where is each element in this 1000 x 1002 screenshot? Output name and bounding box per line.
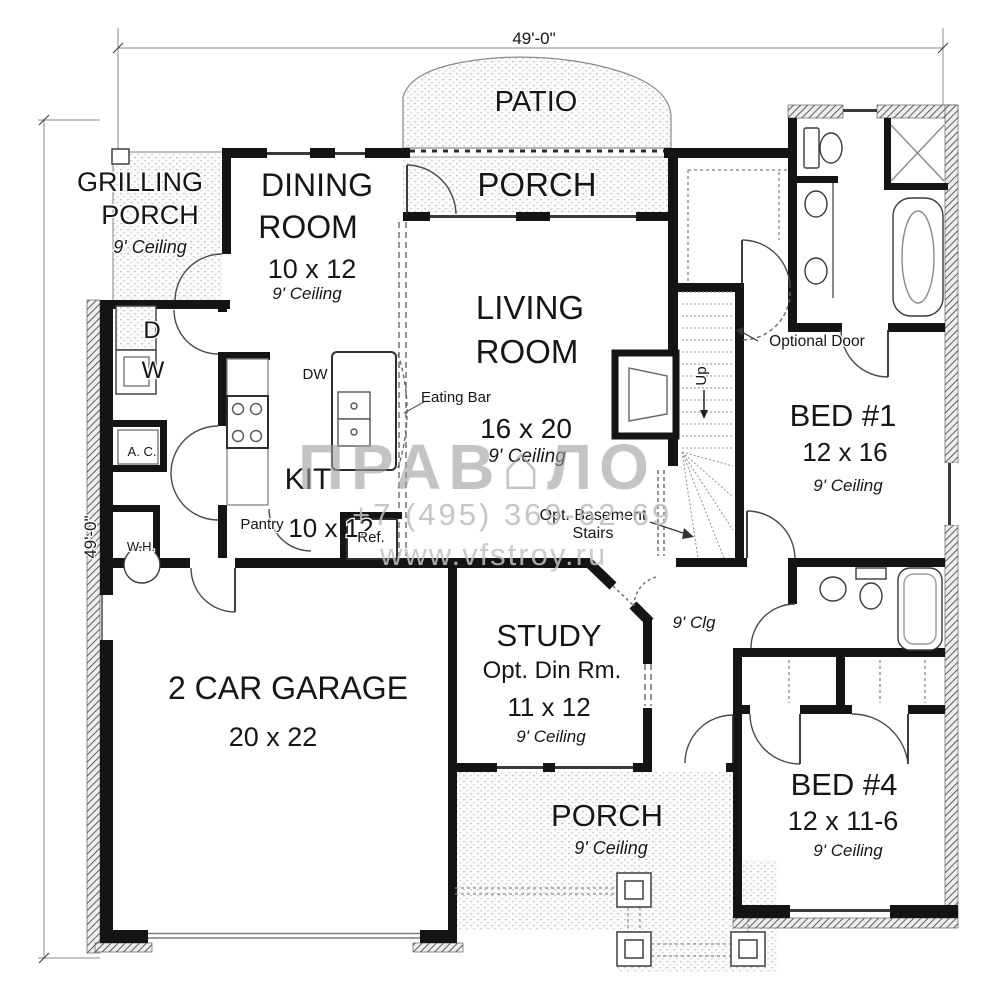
study-alt-label: Opt. Din Rm. — [483, 657, 622, 684]
opt-basement-label-2: Stairs — [573, 525, 614, 542]
stove — [227, 396, 268, 448]
study-label: STUDY — [496, 618, 601, 653]
washer-label: W — [142, 357, 165, 384]
front-porch-label: PORCH — [551, 798, 663, 833]
optional-door-label: Optional Door — [769, 333, 865, 350]
hall-ceiling-label: 9' Clg — [673, 613, 716, 632]
study-size: 11 x 12 — [507, 692, 590, 722]
bed1-ceiling: 9' Ceiling — [813, 476, 883, 495]
bed1-label: BED #1 — [790, 398, 897, 433]
garage-doors — [102, 595, 420, 938]
fridge-label: Ref. — [357, 529, 385, 546]
pantry-label: Pantry — [240, 516, 284, 533]
ac-label: A. C. — [128, 444, 157, 459]
toilet-bowl-master — [820, 133, 842, 163]
front-porch-ceiling: 9' Ceiling — [574, 838, 647, 858]
living-label-1: LIVING — [476, 289, 584, 326]
rear-porch-label: PORCH — [477, 166, 596, 203]
bed4-label: BED #4 — [791, 767, 898, 802]
basement-arrow — [650, 522, 694, 539]
opt-basement-label-1: Opt. Basement — [540, 507, 647, 524]
bed4-size: 12 x 11-6 — [788, 806, 899, 836]
dining-size: 10 x 12 — [268, 254, 357, 284]
floor-plan-drawing: 49'-0" 49'-0" PATIO PORCH GRILLING PORCH… — [0, 0, 1000, 1002]
patio-label: PATIO — [495, 86, 578, 118]
grilling-porch-ceiling: 9' Ceiling — [113, 237, 186, 257]
living-ceiling: 9' Ceiling — [488, 446, 566, 467]
dining-label-2: ROOM — [258, 209, 358, 245]
dimension-top-label: 49'-0" — [512, 29, 555, 48]
rear-porch-screen — [410, 151, 664, 157]
living-size: 16 x 20 — [480, 413, 572, 444]
dining-label-1: DINING — [261, 167, 373, 203]
garage-size: 20 x 22 — [229, 722, 318, 752]
eating-bar-overhang — [398, 354, 407, 468]
dimension-left-label: 49'-0" — [81, 515, 100, 558]
grilling-porch-label-1: GRILLING — [77, 167, 203, 197]
garage-label: 2 CAR GARAGE — [168, 670, 408, 706]
dining-ceiling: 9' Ceiling — [272, 284, 342, 303]
bed4-ceiling: 9' Ceiling — [813, 841, 883, 860]
vanity-sink-2 — [805, 258, 827, 284]
window-bed1 — [945, 463, 958, 525]
kitchen-label: KIT — [285, 463, 332, 496]
toilet-tank-hall — [856, 568, 886, 579]
grilling-porch-label-2: PORCH — [101, 200, 199, 230]
vanity-sink-1 — [805, 191, 827, 217]
dishwasher-label: DW — [303, 366, 329, 383]
bed1-size: 12 x 16 — [802, 437, 887, 467]
study-ceiling: 9' Ceiling — [516, 727, 586, 746]
grill-porch-post — [112, 149, 129, 164]
island-sink — [338, 392, 370, 419]
master-tub — [893, 198, 943, 316]
up-arrow — [700, 390, 708, 419]
floor-plan-page: 49'-0" 49'-0" PATIO PORCH GRILLING PORCH… — [0, 0, 1000, 1002]
toilet-bowl-hall — [860, 583, 882, 609]
water-heater-label: W.H. — [127, 539, 155, 554]
hall-bath-sink — [820, 577, 846, 601]
staircase — [682, 292, 733, 558]
stairs-up-label: Up — [693, 366, 710, 385]
toilet-tank-master — [804, 128, 819, 168]
dryer-label: D — [143, 317, 160, 344]
eating-bar-label: Eating Bar — [421, 389, 491, 406]
living-label-2: ROOM — [476, 333, 579, 370]
